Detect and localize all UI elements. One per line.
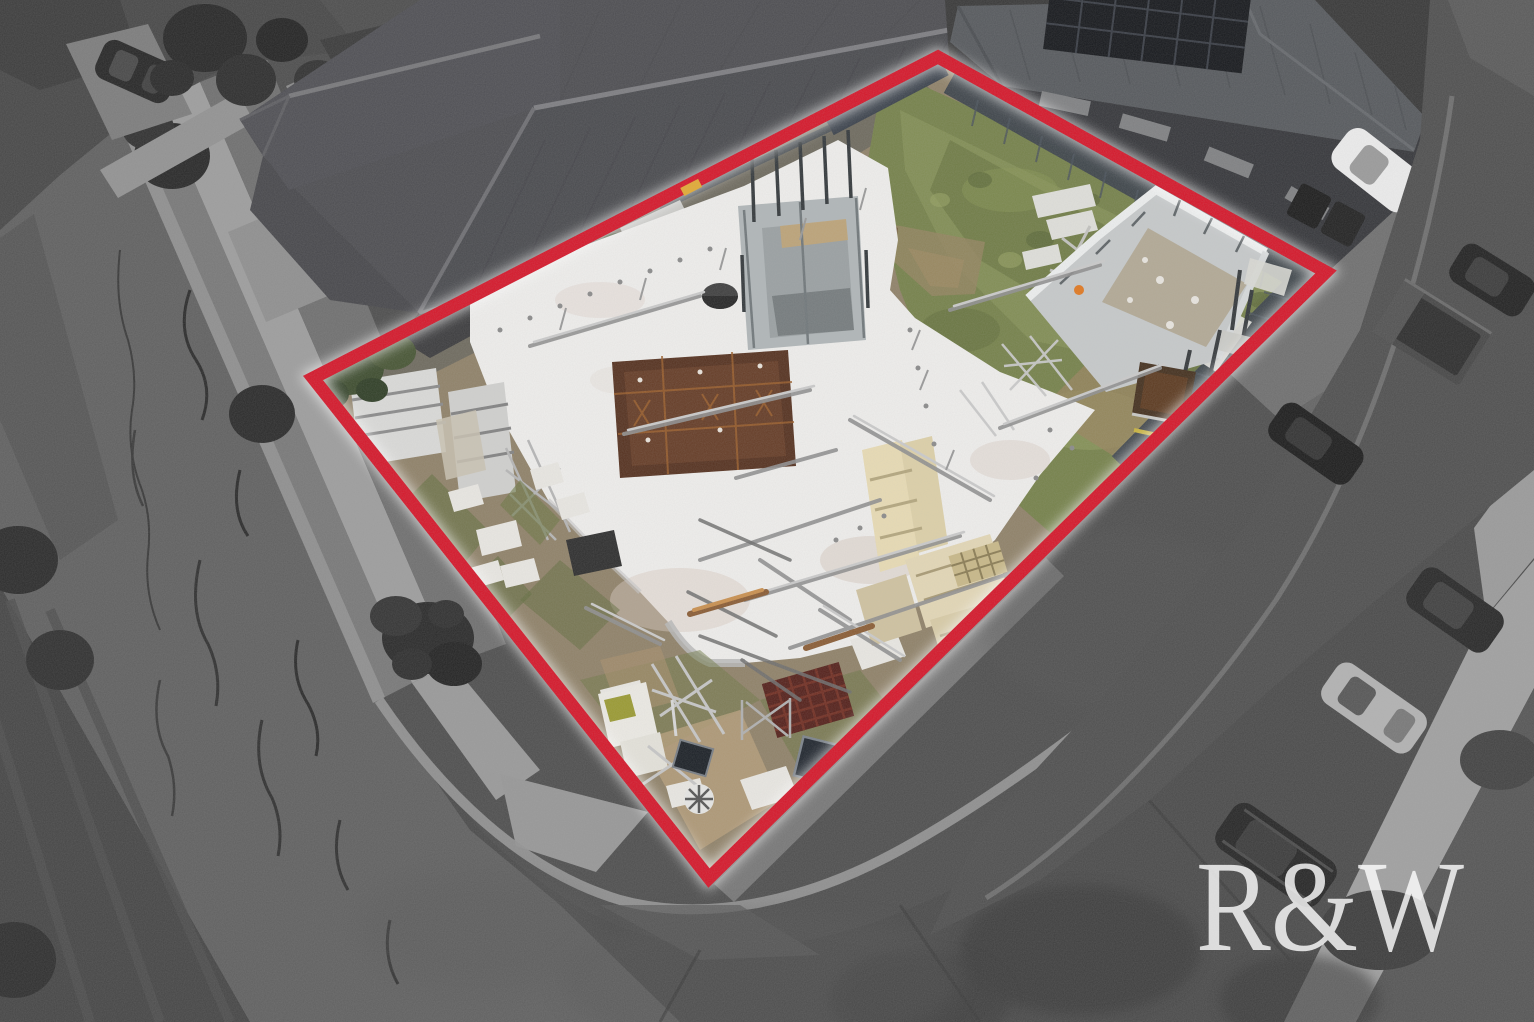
svg-text:R&W: R&W (1196, 835, 1464, 979)
